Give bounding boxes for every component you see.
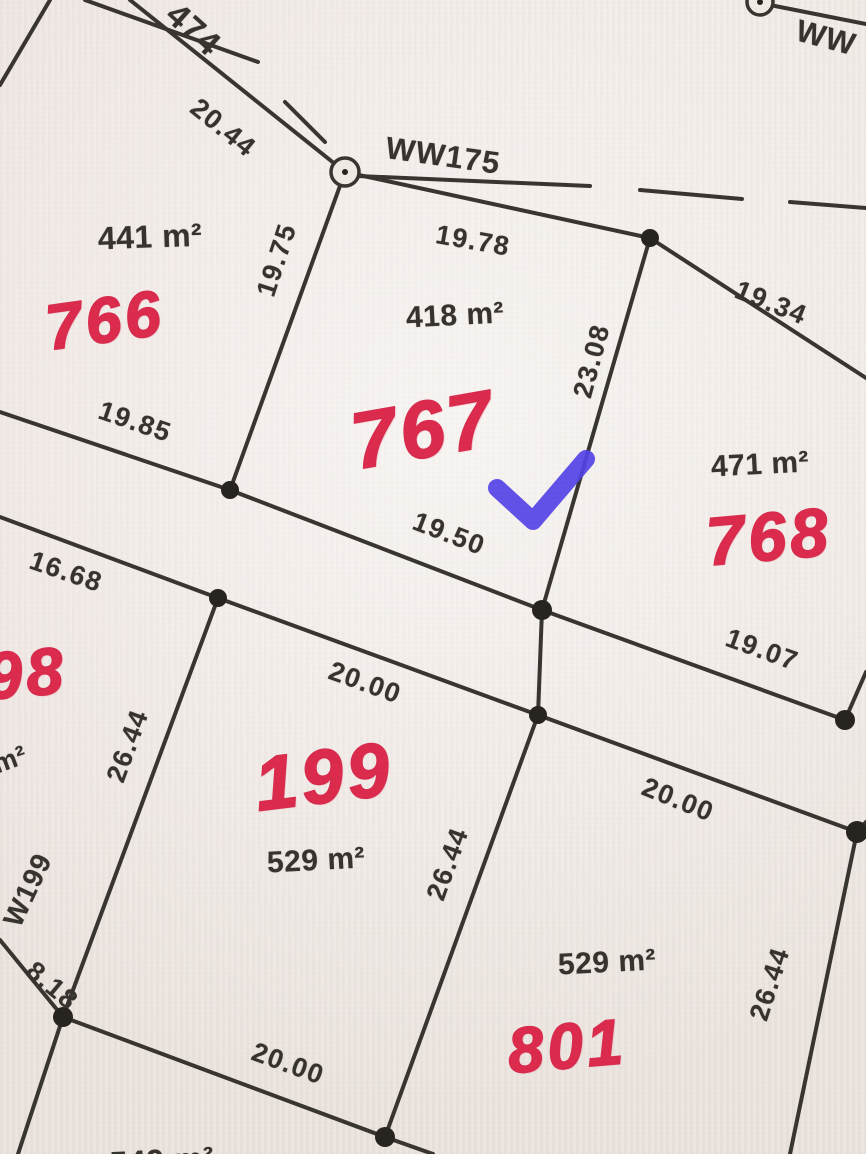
plat-map-scan: 474 WW175 WW W199 20.44 19.85 19.75 19.7… bbox=[0, 0, 866, 1154]
blue-checkmark-annotation bbox=[0, 0, 866, 1154]
